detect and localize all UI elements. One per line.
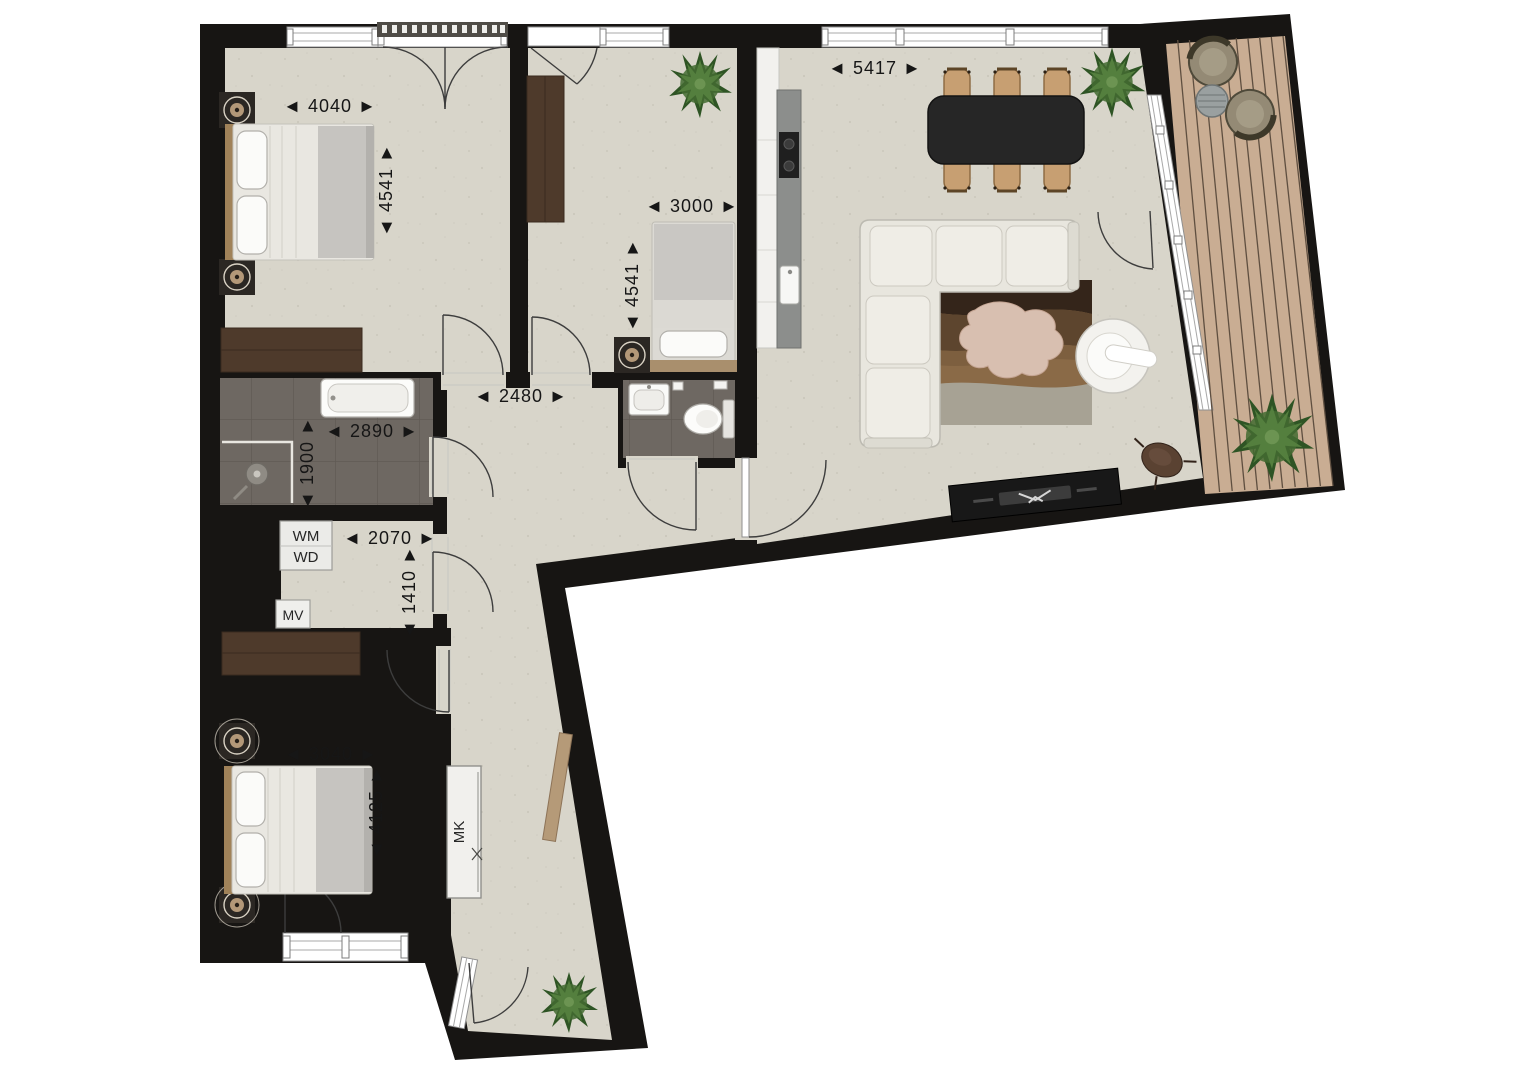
label-washer: WM: [293, 528, 320, 545]
dim-bathroom-width: ◄ 2890 ►: [325, 421, 419, 441]
dim-bedroom1-width: ◄ 4040 ►: [283, 96, 377, 116]
bedroom1-window: [287, 27, 378, 47]
kitchen-counter: [757, 48, 801, 348]
label-dryer: WD: [294, 549, 319, 566]
dim-bedroom3-width: ◄ 3040 ►: [284, 744, 378, 764]
dim-utility-depth: ◄ 1410 ►: [399, 545, 419, 639]
dining-table: [928, 96, 1084, 164]
balcony-side-table: [1196, 85, 1228, 117]
label-vent: MV: [283, 607, 305, 623]
dim-bedroom3-depth: ◄ 4125 ►: [366, 765, 386, 859]
dim-utility-width: ◄ 2070 ►: [343, 528, 437, 548]
dim-living-width: ◄ 5417 ►: [828, 58, 922, 78]
dim-bathroom-depth: ◄ 1900 ►: [297, 416, 317, 510]
bedroom2-window: [600, 27, 669, 47]
dim-hallway-width: ◄ 2480 ►: [474, 386, 568, 406]
sheepskin-rug: [960, 302, 1064, 378]
dining-set: [928, 69, 1084, 191]
bedroom1-furniture: [219, 92, 374, 372]
rug: [929, 280, 1092, 425]
label-meter-cupboard: MK: [451, 821, 468, 844]
dim-bedroom2-width: ◄ 3000 ►: [645, 196, 739, 216]
dim-bedroom1-depth: ◄ 4541 ►: [376, 143, 396, 237]
dim-bedroom2-depth: ◄ 4541 ►: [622, 238, 642, 332]
floor-plan-page: ◄ 4040 ► ◄ 4541 ► ◄ 3000 ► ◄ 4541 ► ◄ 54…: [0, 0, 1536, 1086]
living-room-window: [822, 27, 1108, 47]
floor-plan-canvas: ◄ 4040 ► ◄ 4541 ► ◄ 3000 ► ◄ 4541 ► ◄ 54…: [0, 0, 1536, 1086]
